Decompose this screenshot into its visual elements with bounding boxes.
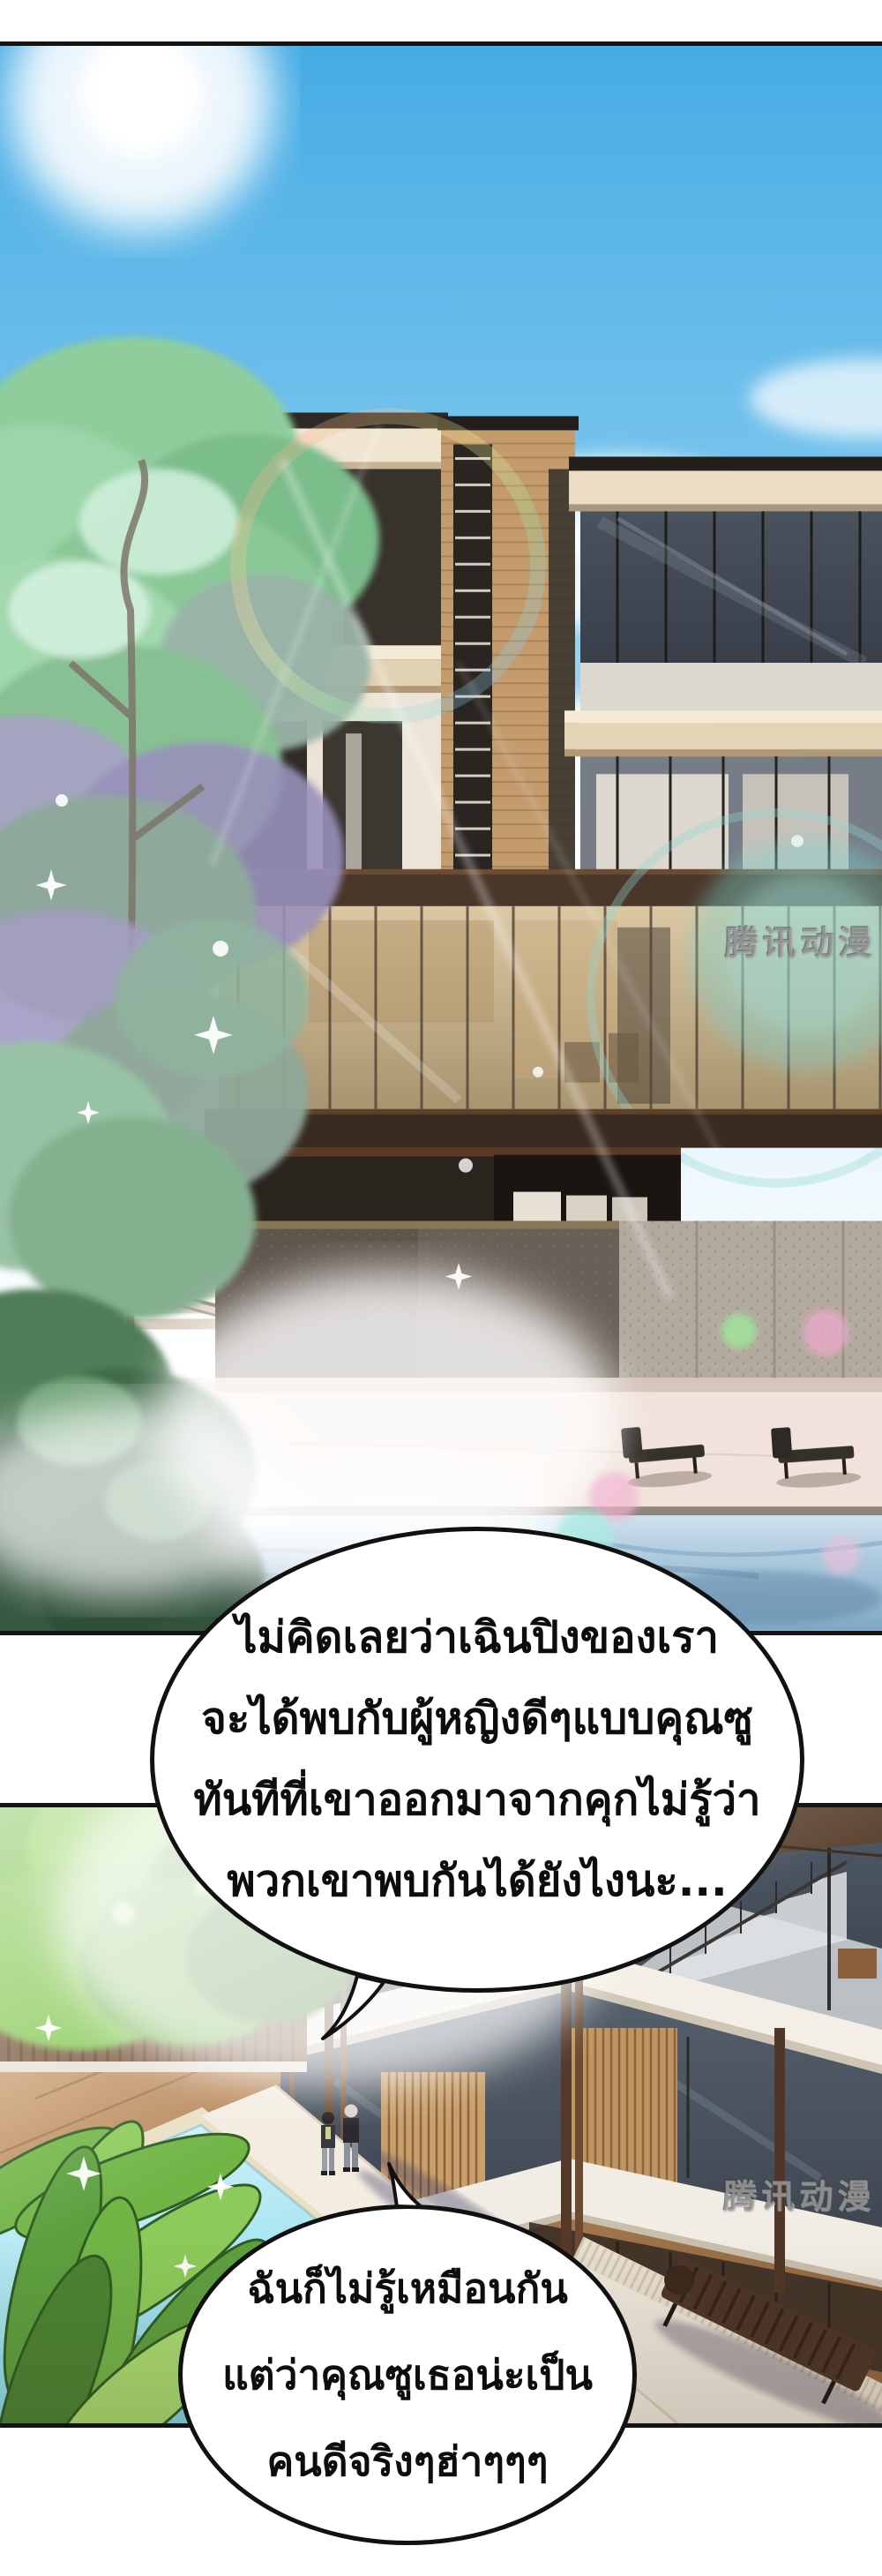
bubble1-line-4: พวกเขาพบกันได้ยังไงนะ...	[227, 1841, 727, 1922]
comic-page: 腾讯动漫	[0, 0, 882, 2576]
bubble2-line-2: แต่ว่าคุณซูเธอน่ะเป็น	[222, 2332, 593, 2418]
bubble2-line-1: ฉันก็ไม่รู้เหมือนกัน	[247, 2245, 568, 2332]
bubble1-line-2: จะได้พบกับผู้หญิงดีๆแบบคุณซู	[201, 1679, 753, 1760]
bubble1-line-1: ไม่คิดเลยว่าเฉินปิงของเรา	[235, 1597, 719, 1679]
bubble2-line-3: คนดีจริงๆฮ่าๆๆๆ	[267, 2418, 549, 2505]
speech-bubble-2: ฉันก็ไม่รู้เหมือนกัน แต่ว่าคุณซูเธอน่ะเป…	[178, 2204, 637, 2545]
panel-villa-exterior: 腾讯动漫	[0, 41, 882, 1635]
bubble1-line-3: ทันทีที่เขาออกมาจากคุกไม่รู้ว่า	[193, 1760, 760, 1841]
speech-bubble-1: ไม่คิดเลยว่าเฉินปิงของเรา จะได้พบกับผู้ห…	[150, 1527, 804, 1993]
panel-villa-exterior-art	[0, 46, 882, 1631]
